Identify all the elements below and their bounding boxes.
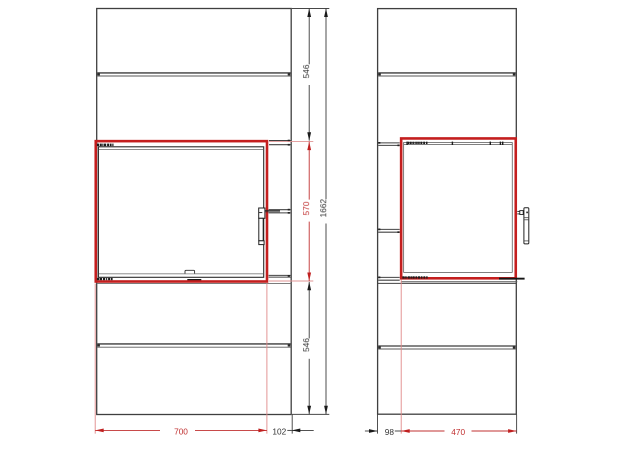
svg-text:570: 570 bbox=[301, 201, 311, 215]
svg-text:1662: 1662 bbox=[318, 199, 328, 218]
svg-text:546: 546 bbox=[301, 338, 311, 352]
svg-text:98: 98 bbox=[385, 427, 395, 437]
svg-text:700: 700 bbox=[174, 427, 188, 437]
svg-text:470: 470 bbox=[451, 427, 465, 437]
svg-text:546: 546 bbox=[301, 64, 311, 78]
svg-text:102: 102 bbox=[272, 427, 286, 437]
